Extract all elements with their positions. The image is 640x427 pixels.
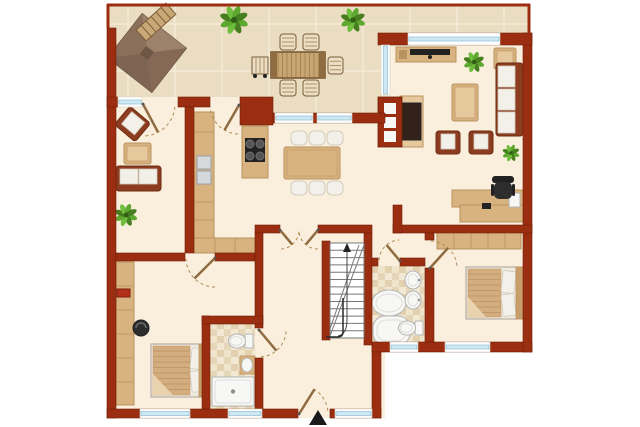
armchair xyxy=(436,131,460,154)
double-bed xyxy=(466,267,523,319)
window xyxy=(118,97,142,107)
sink xyxy=(405,291,421,309)
wall xyxy=(322,241,330,340)
wall xyxy=(107,97,118,107)
outdoor-chair xyxy=(280,80,296,96)
floor-plan-canvas xyxy=(0,0,640,427)
armchair xyxy=(469,131,493,154)
outdoor-chair xyxy=(303,80,319,96)
coffee-table xyxy=(452,84,478,121)
outdoor-dining-table xyxy=(271,52,325,78)
tv-sideboard xyxy=(396,47,456,62)
outdoor-chair xyxy=(328,57,343,74)
office-chair xyxy=(491,176,515,199)
wall xyxy=(255,233,263,328)
window xyxy=(335,409,372,418)
wall xyxy=(425,233,434,240)
window xyxy=(408,33,500,45)
dining-table-set xyxy=(284,131,343,195)
wall xyxy=(372,258,378,266)
toilet xyxy=(229,334,254,348)
toilet xyxy=(399,321,424,335)
wall xyxy=(116,253,185,261)
sink xyxy=(240,356,255,374)
window xyxy=(275,113,313,123)
wall xyxy=(107,28,116,418)
window xyxy=(381,45,390,95)
coffee-table xyxy=(124,143,151,164)
sink xyxy=(405,271,421,289)
wall xyxy=(178,97,210,107)
wall xyxy=(185,107,194,253)
wall xyxy=(202,316,263,324)
window xyxy=(390,342,418,352)
wall xyxy=(255,358,263,409)
wall xyxy=(523,33,532,352)
wall xyxy=(400,258,425,266)
double-bed xyxy=(151,344,205,397)
wall xyxy=(240,97,273,125)
stairs xyxy=(326,243,364,338)
wall xyxy=(393,205,402,233)
sofa xyxy=(116,166,161,191)
outdoor-chair xyxy=(280,34,296,50)
wall xyxy=(425,268,434,342)
wall xyxy=(202,316,210,409)
wall xyxy=(255,225,280,233)
sofa xyxy=(496,63,523,136)
kitchen-island-cooktop xyxy=(242,126,268,178)
storage-box xyxy=(117,289,130,297)
floor-plan xyxy=(0,0,640,427)
wall xyxy=(318,225,372,233)
wall xyxy=(364,233,372,345)
window xyxy=(140,409,190,418)
window xyxy=(317,113,352,123)
stool xyxy=(133,320,149,336)
wall xyxy=(215,253,255,261)
kitchen-counter-return xyxy=(194,238,255,253)
wardrobe xyxy=(437,232,521,249)
outdoor-chair xyxy=(303,34,319,50)
corner-shower xyxy=(372,290,406,316)
window xyxy=(445,342,490,352)
wall xyxy=(372,345,381,418)
window xyxy=(228,409,262,418)
wall xyxy=(107,409,298,418)
shower-tray xyxy=(212,377,254,406)
kitchen-counter xyxy=(194,112,214,238)
wardrobe xyxy=(116,262,134,405)
wall xyxy=(393,225,532,233)
